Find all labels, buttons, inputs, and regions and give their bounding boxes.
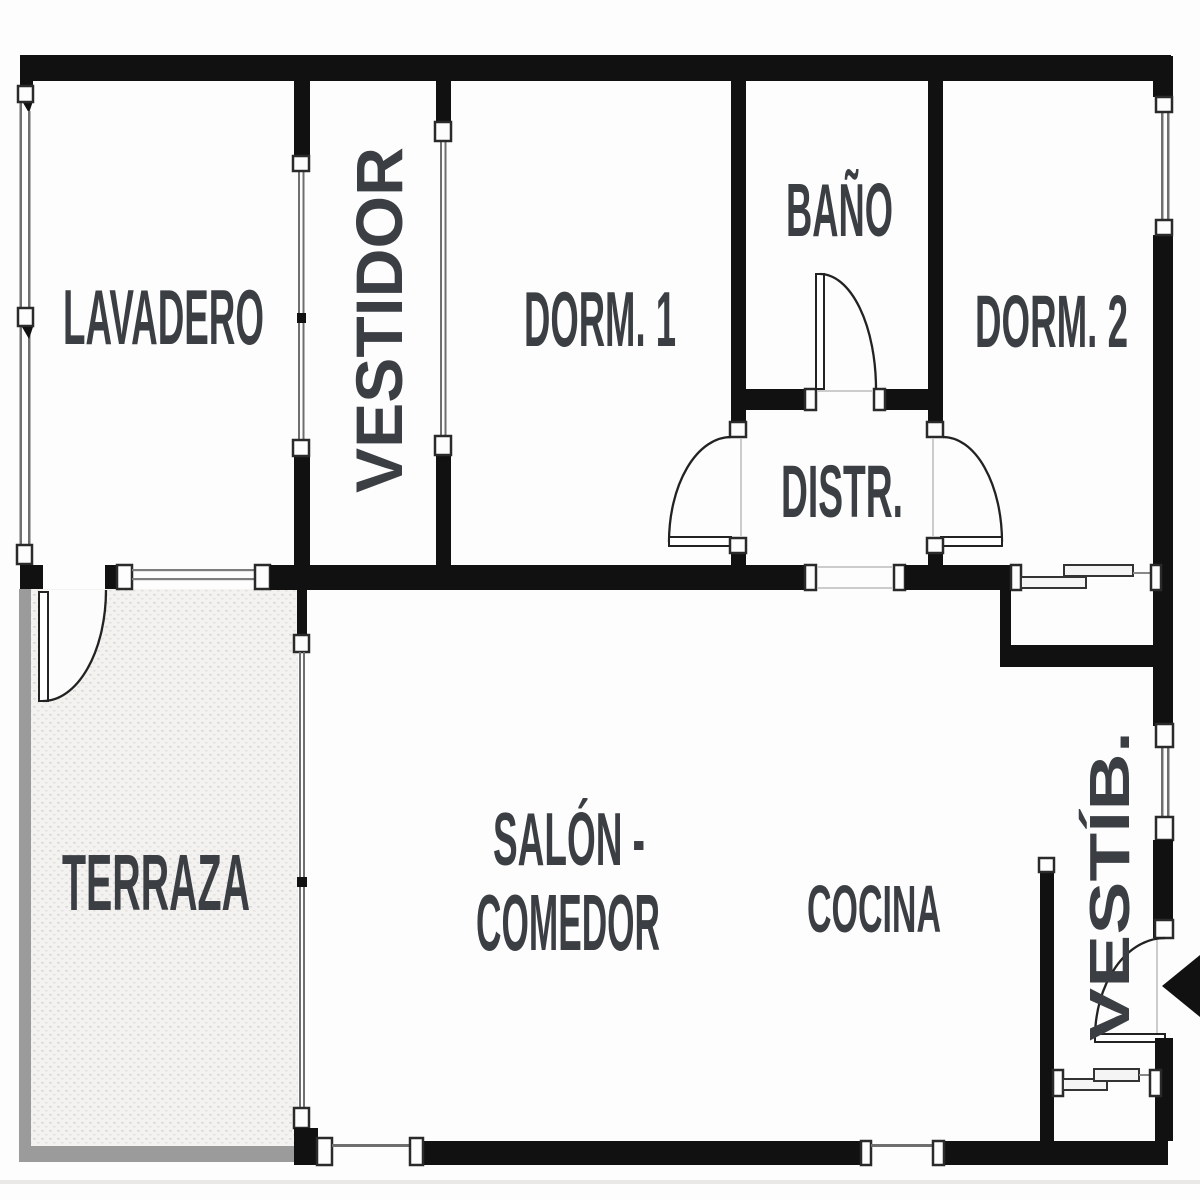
svg-text:DORM. 2: DORM. 2 — [975, 280, 1128, 363]
svg-text:DISTR.: DISTR. — [781, 450, 903, 533]
svg-text:COCINA: COCINA — [807, 872, 941, 947]
svg-text:VESTÍB.: VESTÍB. — [1078, 731, 1142, 1041]
svg-text:TERRAZA: TERRAZA — [62, 838, 250, 927]
svg-text:SALÓN -: SALÓN - — [493, 797, 645, 881]
svg-text:COMEDOR: COMEDOR — [476, 878, 660, 967]
svg-text:DORM. 1: DORM. 1 — [524, 275, 676, 363]
svg-text:BAÑO: BAÑO — [786, 168, 893, 252]
svg-text:VESTIDOR: VESTIDOR — [342, 147, 416, 493]
svg-text:LAVADERO: LAVADERO — [63, 273, 264, 361]
